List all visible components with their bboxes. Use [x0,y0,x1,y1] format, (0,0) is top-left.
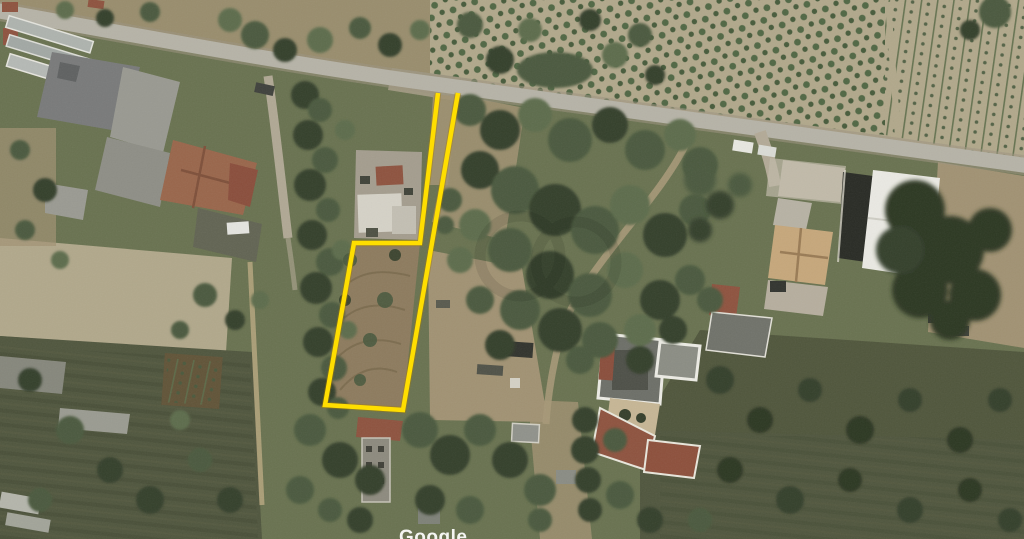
google-watermark: Google [399,527,467,539]
grain-overlay [0,0,1024,539]
aerial-photo: Google [0,0,1024,539]
satellite-map-view[interactable]: Google [0,0,1024,539]
